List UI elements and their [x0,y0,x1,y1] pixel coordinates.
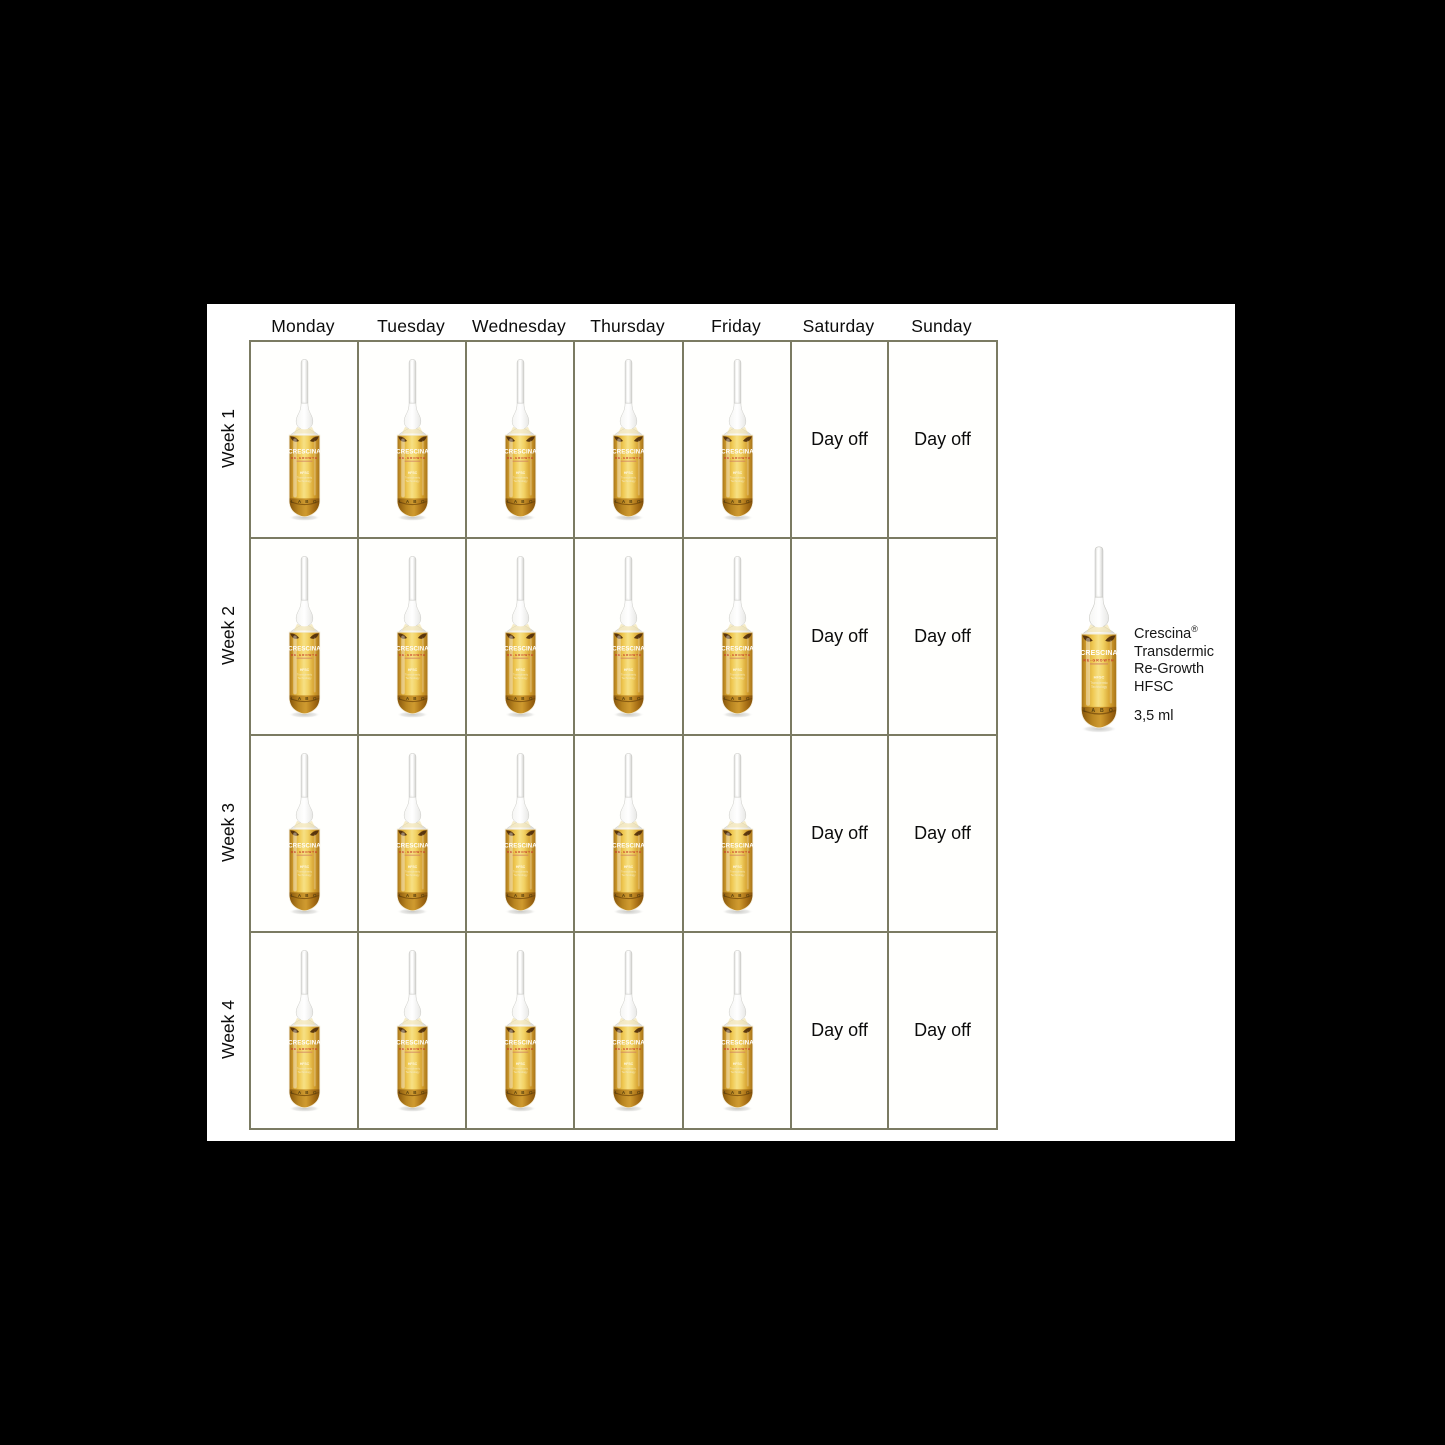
schedule-cell-ampoule [575,933,684,1130]
ampoule-image [708,554,767,719]
ampoule-image [599,554,658,719]
ampoule-image [275,751,334,916]
schedule-cell-ampoule [467,342,575,539]
product-name: Crescina® [1134,626,1214,644]
day-off-label: Day off [914,626,971,647]
schedule-cell-day-off: Day off [792,539,889,736]
product-line-regrowth: Re-Growth [1134,661,1214,679]
ampoule-image [383,357,442,522]
ampoule-image [491,357,550,522]
day-off-label: Day off [811,823,868,844]
schedule-cell-ampoule [251,736,359,933]
day-header: Thursday [573,316,682,337]
schedule-cell-ampoule [251,342,359,539]
ampoule-image [708,751,767,916]
schedule-cell-ampoule [359,539,467,736]
schedule-cell-day-off: Day off [792,736,889,933]
day-header: Tuesday [357,316,465,337]
ampoule-image [383,751,442,916]
schedule-cell-day-off: Day off [792,933,889,1130]
ampoule-image [491,948,550,1113]
day-off-label: Day off [914,823,971,844]
day-off-label: Day off [811,1020,868,1041]
schedule-cell-day-off: Day off [792,342,889,539]
day-header-row: MondayTuesdayWednesdayThursdayFridaySatu… [249,312,998,340]
registered-trademark-icon: ® [1191,624,1198,634]
schedule-cell-ampoule [575,342,684,539]
schedule-grid: Day off Day off Day off Day off Day off … [249,340,998,1130]
poster-background: MondayTuesdayWednesdayThursdayFridaySatu… [0,0,1445,1445]
ampoule-image [383,554,442,719]
schedule-cell-day-off: Day off [889,539,998,736]
schedule-cell-ampoule [575,736,684,933]
schedule-cell-ampoule [684,539,792,736]
week-label: Week 2 [207,537,249,734]
ampoule-image [708,948,767,1113]
schedule-cell-ampoule [467,736,575,933]
product-line-hfsc: HFSC [1134,679,1214,697]
ampoule-image [275,357,334,522]
ampoule-image [383,948,442,1113]
ampoule-image [275,948,334,1113]
content-canvas: MondayTuesdayWednesdayThursdayFridaySatu… [207,304,1235,1141]
schedule-cell-day-off: Day off [889,342,998,539]
week-label: Week 3 [207,734,249,931]
schedule-cell-ampoule [467,933,575,1130]
product-name-text: Crescina [1134,626,1191,642]
week-label: Week 1 [207,340,249,537]
ampoule-image [708,357,767,522]
schedule-cell-ampoule [359,933,467,1130]
day-off-label: Day off [914,429,971,450]
schedule-cell-day-off: Day off [889,933,998,1130]
product-ampoule-image [1065,544,1133,734]
product-volume: 3,5 ml [1134,708,1214,726]
schedule-cell-ampoule [684,736,792,933]
schedule-cell-ampoule [359,736,467,933]
ampoule-image [599,948,658,1113]
schedule-cell-ampoule [684,933,792,1130]
day-header: Friday [682,316,790,337]
week-label-text: Week 4 [218,1000,239,1059]
week-label-text: Week 2 [218,606,239,665]
schedule-cell-day-off: Day off [889,736,998,933]
ampoule-image [599,751,658,916]
week-label: Week 4 [207,931,249,1128]
week-label-text: Week 1 [218,409,239,468]
product-info: Crescina® Transdermic Re-Growth HFSC 3,5… [1134,626,1214,726]
schedule-cell-ampoule [359,342,467,539]
schedule-cell-ampoule [251,539,359,736]
day-header: Wednesday [465,316,573,337]
schedule-cell-ampoule [575,539,684,736]
day-off-label: Day off [811,626,868,647]
ampoule-image [275,554,334,719]
day-header: Monday [249,316,357,337]
schedule-cell-ampoule [467,539,575,736]
day-header: Sunday [887,316,996,337]
ampoule-image [599,357,658,522]
week-label-column: Week 1 Week 2 Week 3 Week 4 [207,340,249,1128]
ampoule-image [491,751,550,916]
ampoule-image [491,554,550,719]
day-off-label: Day off [914,1020,971,1041]
week-label-text: Week 3 [218,803,239,862]
schedule-cell-ampoule [251,933,359,1130]
product-line-transdermic: Transdermic [1134,644,1214,662]
day-off-label: Day off [811,429,868,450]
day-header: Saturday [790,316,887,337]
schedule-cell-ampoule [684,342,792,539]
